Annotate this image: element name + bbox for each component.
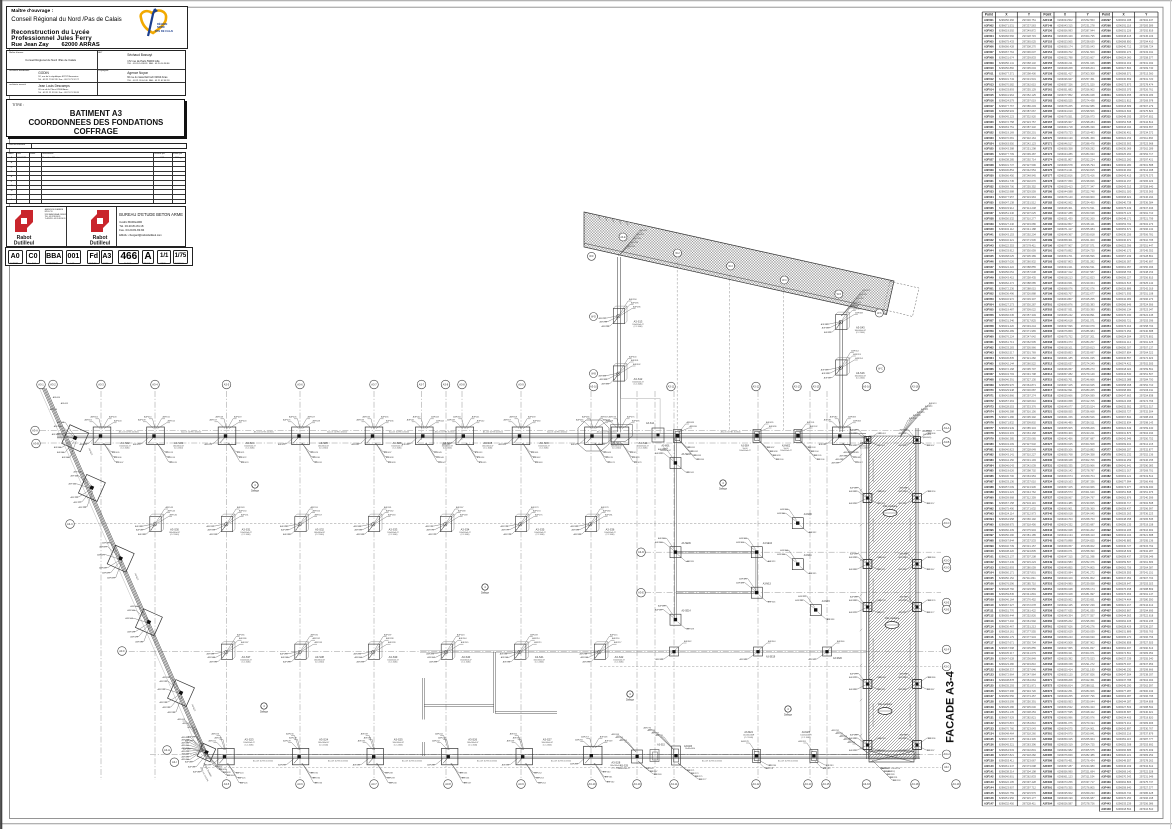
svg-text:297302.437: 297302.437 bbox=[1139, 18, 1153, 22]
svg-text:6296056.227: 6296056.227 bbox=[1116, 276, 1132, 280]
svg-text:297313.360: 297313.360 bbox=[1139, 72, 1153, 76]
svg-text:297278.726: 297278.726 bbox=[1081, 801, 1095, 805]
svg-text:297304.198: 297304.198 bbox=[1022, 769, 1036, 773]
svg-text:A3F268: A3F268 bbox=[1043, 662, 1053, 666]
svg-text:6296045.321: 6296045.321 bbox=[999, 742, 1015, 746]
svg-text:A3F042: A3F042 bbox=[984, 238, 994, 242]
svg-text:297241.891: 297241.891 bbox=[1022, 592, 1036, 596]
svg-text:A3F033: A3F033 bbox=[984, 190, 994, 194]
svg-text:297319.963: 297319.963 bbox=[1022, 195, 1036, 199]
svg-text:A3F007: A3F007 bbox=[984, 50, 994, 54]
svg-text:A3F392: A3F392 bbox=[1101, 528, 1111, 532]
svg-text:A3F341: A3F341 bbox=[1101, 254, 1111, 258]
svg-text:A3F173: A3F173 bbox=[1043, 152, 1053, 156]
svg-text:6296053.629: 6296053.629 bbox=[1057, 630, 1073, 634]
svg-text:A3F118: A3F118 bbox=[984, 646, 994, 650]
svg-text:297316.510: 297316.510 bbox=[1139, 807, 1153, 811]
svg-text:6296030.069: 6296030.069 bbox=[1116, 147, 1132, 151]
svg-text:6296042.259: 6296042.259 bbox=[1116, 458, 1132, 462]
svg-text:A3F160: A3F160 bbox=[1043, 82, 1053, 86]
svg-text:A3F330: A3F330 bbox=[1101, 195, 1111, 199]
svg-text:6296070.681: 6296070.681 bbox=[999, 136, 1015, 140]
svg-text:6296061.185: 6296061.185 bbox=[1057, 356, 1073, 360]
svg-text:297274.249: 297274.249 bbox=[1081, 361, 1095, 365]
svg-text:297297.712: 297297.712 bbox=[1022, 785, 1036, 789]
svg-text:297294.045: 297294.045 bbox=[1081, 512, 1095, 516]
svg-text:297231.193: 297231.193 bbox=[1022, 458, 1036, 462]
svg-text:6296034.575: 6296034.575 bbox=[1057, 726, 1073, 730]
svg-text:6296042.383: 6296042.383 bbox=[1116, 297, 1132, 301]
svg-text:6296034.303: 6296034.303 bbox=[999, 431, 1015, 435]
svg-text:297295.136: 297295.136 bbox=[1139, 539, 1153, 543]
svg-text:A3F430: A3F430 bbox=[1101, 732, 1111, 736]
svg-text:297271.520: 297271.520 bbox=[1081, 82, 1095, 86]
svg-text:6296072.236: 6296072.236 bbox=[999, 286, 1015, 290]
svg-text:6296059.437: 6296059.437 bbox=[1116, 555, 1132, 559]
svg-text:297271.632: 297271.632 bbox=[1022, 506, 1036, 510]
svg-text:A3F274: A3F274 bbox=[1043, 694, 1053, 698]
svg-text:A3F436: A3F436 bbox=[1101, 764, 1111, 768]
svg-text:297297.428: 297297.428 bbox=[1022, 780, 1036, 784]
svg-text:A3F067: A3F067 bbox=[984, 372, 994, 376]
svg-text:297316.902: 297316.902 bbox=[1139, 528, 1153, 532]
svg-text:297296.132: 297296.132 bbox=[1139, 227, 1153, 231]
svg-text:A3F005: A3F005 bbox=[984, 39, 994, 43]
svg-text:6296070.250: 6296070.250 bbox=[1116, 796, 1132, 800]
svg-text:A3F259: A3F259 bbox=[1043, 614, 1053, 618]
svg-text:A3F210: A3F210 bbox=[1043, 351, 1053, 355]
svg-text:297261.035: 297261.035 bbox=[1081, 356, 1095, 360]
svg-text:297232.801: 297232.801 bbox=[1022, 748, 1036, 752]
svg-text:A3F080: A3F080 bbox=[984, 442, 994, 446]
svg-text:6296042.157: 6296042.157 bbox=[1116, 179, 1132, 183]
svg-text:A3F401: A3F401 bbox=[1101, 576, 1111, 580]
svg-text:A3F104: A3F104 bbox=[984, 571, 994, 575]
svg-text:6296028.067: 6296028.067 bbox=[1057, 496, 1073, 500]
svg-text:297230.966: 297230.966 bbox=[1081, 463, 1095, 467]
svg-text:297290.083: 297290.083 bbox=[1139, 463, 1153, 467]
svg-text:6296022.153: 6296022.153 bbox=[1116, 136, 1132, 140]
svg-text:297330.044: 297330.044 bbox=[1081, 700, 1095, 704]
svg-text:297228.861: 297228.861 bbox=[1139, 254, 1153, 258]
svg-text:6296049.354: 6296049.354 bbox=[1057, 614, 1073, 618]
svg-text:A3F040: A3F040 bbox=[984, 227, 994, 231]
svg-text:A3F305: A3F305 bbox=[1101, 61, 1111, 65]
svg-text:6296061.347: 6296061.347 bbox=[999, 764, 1015, 768]
svg-text:297275.904: 297275.904 bbox=[1022, 528, 1036, 532]
svg-text:Y: Y bbox=[1087, 13, 1090, 17]
svg-text:6296074.354: 6296074.354 bbox=[1116, 329, 1132, 333]
svg-text:A3F355: A3F355 bbox=[1101, 329, 1111, 333]
svg-text:297284.048: 297284.048 bbox=[1081, 93, 1095, 97]
svg-text:6296023.139: 6296023.139 bbox=[1057, 136, 1073, 140]
svg-text:6296055.605: 6296055.605 bbox=[1057, 426, 1073, 430]
svg-text:297269.233: 297269.233 bbox=[1081, 791, 1095, 795]
svg-text:Dutilleul: Dutilleul bbox=[90, 241, 111, 247]
svg-text:A3F252: A3F252 bbox=[1043, 576, 1053, 580]
svg-text:297249.930: 297249.930 bbox=[1139, 485, 1153, 489]
svg-text:A3F379: A3F379 bbox=[1101, 458, 1111, 462]
svg-text:A3F303: A3F303 bbox=[1101, 50, 1111, 54]
svg-text:A3F383: A3F383 bbox=[1101, 479, 1111, 483]
svg-text:297288.855: 297288.855 bbox=[1022, 265, 1036, 269]
svg-text:Dutilleul: Dutilleul bbox=[14, 241, 35, 247]
svg-text:6296063.674: 6296063.674 bbox=[1057, 474, 1073, 478]
svg-text:6296019.169: 6296019.169 bbox=[999, 131, 1015, 135]
svg-text:6296070.852: 6296070.852 bbox=[1057, 249, 1073, 253]
svg-text:A3F256: A3F256 bbox=[1043, 598, 1053, 602]
svg-text:A3F081: A3F081 bbox=[984, 447, 994, 451]
svg-text:6296062.806: 6296062.806 bbox=[1116, 780, 1132, 784]
svg-text:A3F433: A3F433 bbox=[1101, 748, 1111, 752]
svg-text:6296068.076: 6296068.076 bbox=[1057, 286, 1073, 290]
svg-text:297318.260: 297318.260 bbox=[1022, 732, 1036, 736]
svg-text:6296031.889: 6296031.889 bbox=[1116, 630, 1132, 634]
svg-text:A3F073: A3F073 bbox=[984, 404, 994, 408]
svg-text:6296043.209: 6296043.209 bbox=[999, 442, 1015, 446]
svg-text:A3F187: A3F187 bbox=[1043, 227, 1053, 231]
svg-text:297270.469: 297270.469 bbox=[1139, 748, 1153, 752]
svg-text:297330.704: 297330.704 bbox=[1022, 640, 1036, 644]
svg-text:297236.360: 297236.360 bbox=[1081, 506, 1095, 510]
svg-text:6296055.262: 6296055.262 bbox=[1057, 619, 1073, 623]
svg-text:6296063.751: 6296063.751 bbox=[999, 125, 1015, 129]
svg-text:A3F171: A3F171 bbox=[1043, 141, 1053, 145]
svg-text:6296050.556: 6296050.556 bbox=[999, 694, 1015, 698]
svg-text:297288.592: 297288.592 bbox=[1139, 705, 1153, 709]
svg-text:6296027.804: 6296027.804 bbox=[1116, 66, 1132, 70]
svg-text:297286.203: 297286.203 bbox=[1022, 104, 1036, 108]
svg-text:6296063.950: 6296063.950 bbox=[999, 141, 1015, 145]
svg-text:A3F013: A3F013 bbox=[984, 82, 994, 86]
svg-text:297273.457: 297273.457 bbox=[1022, 694, 1036, 698]
svg-text:6296056.858: 6296056.858 bbox=[1116, 640, 1132, 644]
svg-text:A3F299: A3F299 bbox=[1101, 29, 1111, 33]
svg-text:6296036.057: 6296036.057 bbox=[1057, 367, 1073, 371]
svg-text:A3F109: A3F109 bbox=[984, 598, 994, 602]
svg-text:6296042.866: 6296042.866 bbox=[999, 394, 1015, 398]
svg-text:297275.523: 297275.523 bbox=[1081, 657, 1095, 661]
svg-text:6296075.433: 6296075.433 bbox=[999, 39, 1015, 43]
svg-text:A3F065: A3F065 bbox=[984, 361, 994, 365]
svg-text:A3F381: A3F381 bbox=[1101, 469, 1111, 473]
svg-text:6296032.450: 6296032.450 bbox=[999, 801, 1015, 805]
svg-text:297304.599: 297304.599 bbox=[1081, 394, 1095, 398]
svg-text:297319.483: 297319.483 bbox=[1081, 131, 1095, 135]
svg-text:A3F338: A3F338 bbox=[1101, 238, 1111, 242]
svg-text:297294.410: 297294.410 bbox=[1139, 39, 1153, 43]
svg-text:297277.943: 297277.943 bbox=[1022, 635, 1036, 639]
svg-text:A3F127: A3F127 bbox=[984, 694, 994, 698]
svg-text:297254.825: 297254.825 bbox=[1081, 539, 1095, 543]
svg-text:A3F293: A3F293 bbox=[1043, 796, 1053, 800]
svg-text:297337.717: 297337.717 bbox=[1081, 780, 1095, 784]
svg-text:297272.078: 297272.078 bbox=[1022, 603, 1036, 607]
svg-text:6296043.793: 6296043.793 bbox=[999, 372, 1015, 376]
svg-text:6296051.346: 6296051.346 bbox=[999, 211, 1015, 215]
svg-text:297296.795: 297296.795 bbox=[1139, 694, 1153, 698]
svg-text:6296065.242: 6296065.242 bbox=[1057, 313, 1073, 317]
svg-text:A3F385: A3F385 bbox=[1101, 490, 1111, 494]
svg-text:A3F140: A3F140 bbox=[984, 764, 994, 768]
svg-text:A3F017: A3F017 bbox=[984, 104, 994, 108]
svg-text:6296044.286: 6296044.286 bbox=[1057, 152, 1073, 156]
svg-text:297238.253: 297238.253 bbox=[1022, 710, 1036, 714]
svg-text:297331.282: 297331.282 bbox=[1081, 259, 1095, 263]
svg-text:6296064.958: 6296064.958 bbox=[999, 517, 1015, 521]
svg-text:297286.428: 297286.428 bbox=[1139, 791, 1153, 795]
svg-text:6296077.050: 6296077.050 bbox=[1057, 179, 1073, 183]
svg-text:A3F035: A3F035 bbox=[984, 200, 994, 204]
svg-text:6296031.346: 6296031.346 bbox=[999, 318, 1015, 322]
svg-text:6296046.480: 6296046.480 bbox=[1057, 420, 1073, 424]
svg-text:A3F057: A3F057 bbox=[984, 318, 994, 322]
svg-text:A3F304: A3F304 bbox=[1101, 55, 1111, 59]
svg-text:A3F136: A3F136 bbox=[984, 742, 994, 746]
svg-text:A3F366: A3F366 bbox=[1101, 388, 1111, 392]
svg-text:A3F072: A3F072 bbox=[984, 399, 994, 403]
svg-text:A3F310: A3F310 bbox=[1101, 88, 1111, 92]
svg-text:A3F226: A3F226 bbox=[1043, 437, 1053, 441]
svg-text:6296035.602: 6296035.602 bbox=[1057, 791, 1073, 795]
svg-text:297240.599: 297240.599 bbox=[1139, 496, 1153, 500]
svg-text:A3F061: A3F061 bbox=[984, 340, 994, 344]
svg-text:A3F074: A3F074 bbox=[984, 410, 994, 414]
svg-text:A3F372: A3F372 bbox=[1101, 420, 1111, 424]
svg-text:6296057.671: 6296057.671 bbox=[999, 640, 1015, 644]
svg-text:297239.058: 297239.058 bbox=[1081, 581, 1095, 585]
svg-text:6296031.118: 6296031.118 bbox=[1116, 23, 1132, 27]
svg-text:297263.396: 297263.396 bbox=[1022, 742, 1036, 746]
svg-text:6296027.955: 6296027.955 bbox=[1057, 646, 1073, 650]
svg-text:A3F096: A3F096 bbox=[984, 528, 994, 532]
svg-text:6296065.444: 6296065.444 bbox=[999, 614, 1015, 618]
svg-text:297335.383: 297335.383 bbox=[1081, 302, 1095, 306]
svg-text:A3F215: A3F215 bbox=[1043, 377, 1053, 381]
svg-text:6296033.283: 6296033.283 bbox=[999, 345, 1015, 349]
svg-text:297329.559: 297329.559 bbox=[1022, 190, 1036, 194]
svg-text:A3F218: A3F218 bbox=[1043, 394, 1053, 398]
svg-text:6296025.573: 6296025.573 bbox=[1057, 490, 1073, 494]
svg-text:297238.639: 297238.639 bbox=[1081, 39, 1095, 43]
svg-text:A3F301: A3F301 bbox=[1101, 39, 1111, 43]
svg-text:Point: Point bbox=[1102, 13, 1111, 17]
svg-text:6296058.055: 6296058.055 bbox=[1057, 410, 1073, 414]
svg-text:297334.612: 297334.612 bbox=[1139, 764, 1153, 768]
svg-text:297247.964: 297247.964 bbox=[1022, 673, 1036, 677]
svg-text:297249.872: 297249.872 bbox=[1022, 29, 1036, 33]
svg-text:A3F344: A3F344 bbox=[1101, 270, 1111, 274]
svg-text:A3F291: A3F291 bbox=[1043, 785, 1053, 789]
svg-text:6296024.422: 6296024.422 bbox=[999, 265, 1015, 269]
svg-text:6296065.761: 6296065.761 bbox=[1057, 377, 1073, 381]
svg-text:297263.168: 297263.168 bbox=[1022, 431, 1036, 435]
svg-text:297327.587: 297327.587 bbox=[1081, 270, 1095, 274]
svg-text:297259.430: 297259.430 bbox=[1139, 426, 1153, 430]
svg-text:A3F229: A3F229 bbox=[1043, 453, 1053, 457]
svg-text:6296055.976: 6296055.976 bbox=[999, 383, 1015, 387]
svg-text:A3F314: A3F314 bbox=[1101, 109, 1111, 113]
svg-text:6296067.327: 6296067.327 bbox=[999, 603, 1015, 607]
svg-text:297245.276: 297245.276 bbox=[1081, 624, 1095, 628]
svg-text:6296038.314: 6296038.314 bbox=[999, 769, 1015, 773]
svg-text:297309.802: 297309.802 bbox=[1022, 420, 1036, 424]
svg-text:A3F411: A3F411 bbox=[1101, 630, 1111, 634]
svg-text:A3F367: A3F367 bbox=[1101, 394, 1111, 398]
svg-text:297244.980: 297244.980 bbox=[1081, 764, 1095, 768]
svg-text:6296061.057: 6296061.057 bbox=[1116, 265, 1132, 269]
svg-text:297285.343: 297285.343 bbox=[1022, 426, 1036, 430]
svg-text:6296051.838: 6296051.838 bbox=[1116, 490, 1132, 494]
svg-text:A3F059: A3F059 bbox=[984, 329, 994, 333]
svg-text:297233.041: 297233.041 bbox=[1139, 50, 1153, 54]
svg-text:6296032.972: 6296032.972 bbox=[999, 297, 1015, 301]
svg-text:A3F023: A3F023 bbox=[984, 136, 994, 140]
svg-text:A3F217: A3F217 bbox=[1043, 388, 1053, 392]
svg-text:297236.849: 297236.849 bbox=[1022, 657, 1036, 661]
svg-text:6296068.025: 6296068.025 bbox=[999, 254, 1015, 258]
svg-text:6296076.596: 6296076.596 bbox=[999, 581, 1015, 585]
svg-text:A3F135: A3F135 bbox=[984, 737, 994, 741]
svg-text:297275.416: 297275.416 bbox=[1081, 174, 1095, 178]
svg-text:Y: Y bbox=[1028, 13, 1031, 17]
svg-text:A3F232: A3F232 bbox=[1043, 469, 1053, 473]
svg-text:A3F432: A3F432 bbox=[1101, 742, 1111, 746]
svg-text:297241.188: 297241.188 bbox=[1022, 227, 1036, 231]
svg-text:A3F197: A3F197 bbox=[1043, 281, 1053, 285]
svg-text:A3F437: A3F437 bbox=[1101, 769, 1111, 773]
svg-text:6296029.647: 6296029.647 bbox=[1116, 581, 1132, 585]
svg-text:A3F357: A3F357 bbox=[1101, 340, 1111, 344]
svg-text:A3F333: A3F333 bbox=[1101, 211, 1111, 215]
svg-text:A3F387: A3F387 bbox=[1101, 501, 1111, 505]
svg-text:6296038.878: 6296038.878 bbox=[999, 678, 1015, 682]
svg-text:A3F289: A3F289 bbox=[1043, 775, 1053, 779]
svg-text:297314.248: 297314.248 bbox=[1022, 206, 1036, 210]
svg-text:297307.208: 297307.208 bbox=[1022, 555, 1036, 559]
svg-text:297305.575: 297305.575 bbox=[1081, 748, 1095, 752]
svg-text:297236.257: 297236.257 bbox=[1139, 624, 1153, 628]
svg-text:297294.695: 297294.695 bbox=[1139, 608, 1153, 612]
svg-text:6296051.135: 6296051.135 bbox=[999, 710, 1015, 714]
svg-text:A3F395: A3F395 bbox=[1101, 544, 1111, 548]
svg-text:A3F297: A3F297 bbox=[1101, 18, 1111, 22]
svg-text:297258.435: 297258.435 bbox=[1022, 276, 1036, 280]
svg-text:A3F324: A3F324 bbox=[1101, 163, 1111, 167]
svg-text:A3F405: A3F405 bbox=[1101, 598, 1111, 602]
svg-text:A3F315: A3F315 bbox=[1101, 115, 1111, 119]
svg-text:6296044.588: 6296044.588 bbox=[1057, 190, 1073, 194]
svg-text:6296076.849: 6296076.849 bbox=[1057, 753, 1073, 757]
svg-text:A3F266: A3F266 bbox=[1043, 651, 1053, 655]
svg-text:A3F240: A3F240 bbox=[1043, 512, 1053, 516]
svg-text:A3F083: A3F083 bbox=[984, 458, 994, 462]
svg-text:297329.813: 297329.813 bbox=[1081, 345, 1095, 349]
svg-text:6296018.213: 6296018.213 bbox=[1057, 276, 1073, 280]
svg-text:297274.766: 297274.766 bbox=[1139, 399, 1153, 403]
svg-text:297268.763: 297268.763 bbox=[1081, 517, 1095, 521]
svg-text:6296034.502: 6296034.502 bbox=[1057, 18, 1073, 22]
svg-text:A3F162: A3F162 bbox=[1043, 93, 1053, 97]
svg-text:A3F214: A3F214 bbox=[1043, 372, 1053, 376]
svg-text:297243.221: 297243.221 bbox=[1081, 431, 1095, 435]
svg-text:A3F369: A3F369 bbox=[1101, 404, 1111, 408]
svg-text:A3F099: A3F099 bbox=[984, 544, 994, 548]
svg-text:297301.769: 297301.769 bbox=[1022, 351, 1036, 355]
svg-text:6296057.821: 6296057.821 bbox=[999, 753, 1015, 757]
svg-text:6296041.964: 6296041.964 bbox=[999, 93, 1015, 97]
svg-text:A3F053: A3F053 bbox=[984, 297, 994, 301]
svg-text:A3F108: A3F108 bbox=[984, 592, 994, 596]
svg-text:A3F222: A3F222 bbox=[1043, 415, 1053, 419]
svg-text:6296050.768: 6296050.768 bbox=[1057, 453, 1073, 457]
svg-text:6296018.564: 6296018.564 bbox=[1116, 807, 1132, 811]
svg-text:6296020.759: 6296020.759 bbox=[999, 791, 1015, 795]
svg-text:A3F260: A3F260 bbox=[1043, 619, 1053, 623]
svg-text:A3F089: A3F089 bbox=[984, 490, 994, 494]
svg-text:297288.869: 297288.869 bbox=[1139, 587, 1153, 591]
svg-text:A3F152: A3F152 bbox=[1043, 39, 1053, 43]
svg-text:A3F440: A3F440 bbox=[1101, 785, 1111, 789]
svg-text:6296047.449: 6296047.449 bbox=[999, 560, 1015, 564]
svg-text:6296029.319: 6296029.319 bbox=[1057, 742, 1073, 746]
svg-text:6296067.764: 6296067.764 bbox=[999, 50, 1015, 54]
svg-text:6296032.952: 6296032.952 bbox=[1116, 404, 1132, 408]
svg-text:A3F363: A3F363 bbox=[1101, 372, 1111, 376]
svg-text:A3F345: A3F345 bbox=[1101, 276, 1111, 280]
svg-text:6296048.035: 6296048.035 bbox=[1116, 115, 1132, 119]
svg-text:297237.010: 297237.010 bbox=[1022, 479, 1036, 483]
svg-text:297261.422: 297261.422 bbox=[1022, 608, 1036, 612]
svg-text:6296076.123: 6296076.123 bbox=[1116, 211, 1132, 215]
svg-text:A3F176: A3F176 bbox=[1043, 168, 1053, 172]
svg-text:A3F137: A3F137 bbox=[984, 748, 994, 752]
svg-text:6296043.315: 6296043.315 bbox=[1057, 23, 1073, 27]
svg-text:A3F003: A3F003 bbox=[984, 29, 994, 33]
svg-text:6296062.756: 6296062.756 bbox=[1116, 565, 1132, 569]
svg-text:6296053.216: 6296053.216 bbox=[1116, 732, 1132, 736]
svg-text:297312.973: 297312.973 bbox=[1022, 512, 1036, 516]
svg-text:A3F194: A3F194 bbox=[1043, 265, 1053, 269]
svg-text:A3F404: A3F404 bbox=[1101, 592, 1111, 596]
svg-text:297284.257: 297284.257 bbox=[1081, 340, 1095, 344]
svg-text:297332.235: 297332.235 bbox=[1139, 619, 1153, 623]
svg-text:6296070.723: 6296070.723 bbox=[1057, 131, 1073, 135]
svg-text:A3F131: A3F131 bbox=[984, 716, 994, 720]
svg-text:6296062.405: 6296062.405 bbox=[1116, 619, 1132, 623]
svg-text:A3F312: A3F312 bbox=[1101, 98, 1111, 102]
svg-text:6296076.224: 6296076.224 bbox=[999, 335, 1015, 339]
svg-text:6296065.767: 6296065.767 bbox=[1057, 292, 1073, 296]
svg-text:297260.039: 297260.039 bbox=[1081, 630, 1095, 634]
svg-text:6296040.801: 6296040.801 bbox=[999, 775, 1015, 779]
svg-text:297274.805: 297274.805 bbox=[1081, 565, 1095, 569]
svg-text:297330.390: 297330.390 bbox=[1081, 308, 1095, 312]
svg-text:6296033.136: 6296033.136 bbox=[999, 479, 1015, 483]
svg-text:297242.123: 297242.123 bbox=[1022, 141, 1036, 145]
svg-text:6296069.057: 6296069.057 bbox=[1057, 544, 1073, 548]
svg-text:6296076.869: 6296076.869 bbox=[1057, 329, 1073, 333]
svg-text:A3F378: A3F378 bbox=[1101, 453, 1111, 457]
svg-text:297334.119: 297334.119 bbox=[1022, 501, 1036, 505]
svg-text:A3F328: A3F328 bbox=[1101, 184, 1111, 188]
svg-text:297304.304: 297304.304 bbox=[1139, 678, 1153, 682]
svg-text:297287.067: 297287.067 bbox=[1022, 109, 1036, 113]
svg-text:297252.710: 297252.710 bbox=[1139, 383, 1153, 387]
svg-text:297238.153: 297238.153 bbox=[1139, 270, 1153, 274]
svg-text:297277.347: 297277.347 bbox=[1081, 184, 1095, 188]
svg-text:297315.576: 297315.576 bbox=[1022, 791, 1036, 795]
